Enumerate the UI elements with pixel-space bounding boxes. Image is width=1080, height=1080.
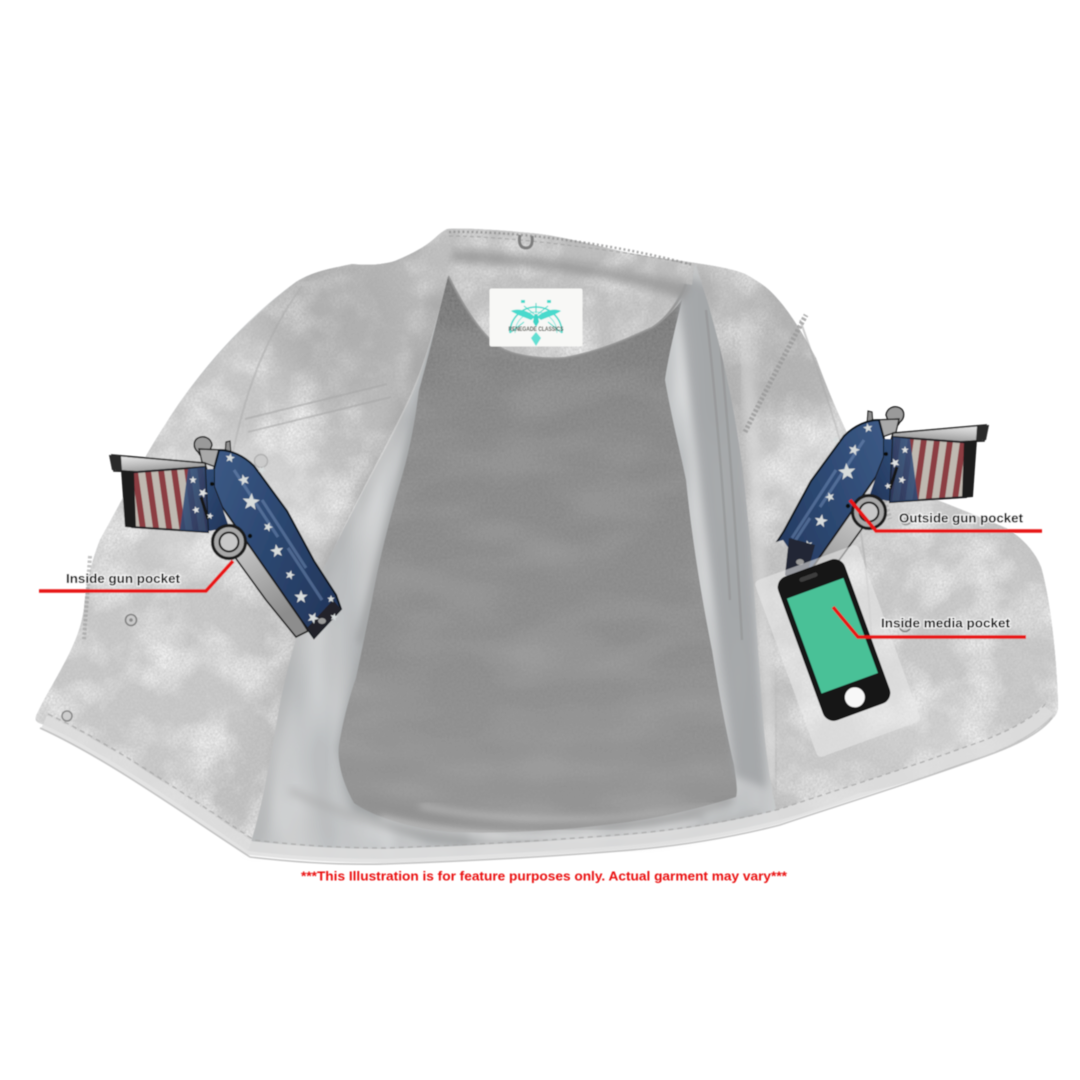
svg-text:Inside gun pocket: Inside gun pocket bbox=[66, 572, 181, 586]
svg-text:Outside gun pocket: Outside gun pocket bbox=[899, 512, 1024, 526]
svg-text:***This Illustration is for fe: ***This Illustration is for feature purp… bbox=[301, 869, 788, 884]
svg-text:Inside media pocket: Inside media pocket bbox=[881, 617, 1011, 631]
